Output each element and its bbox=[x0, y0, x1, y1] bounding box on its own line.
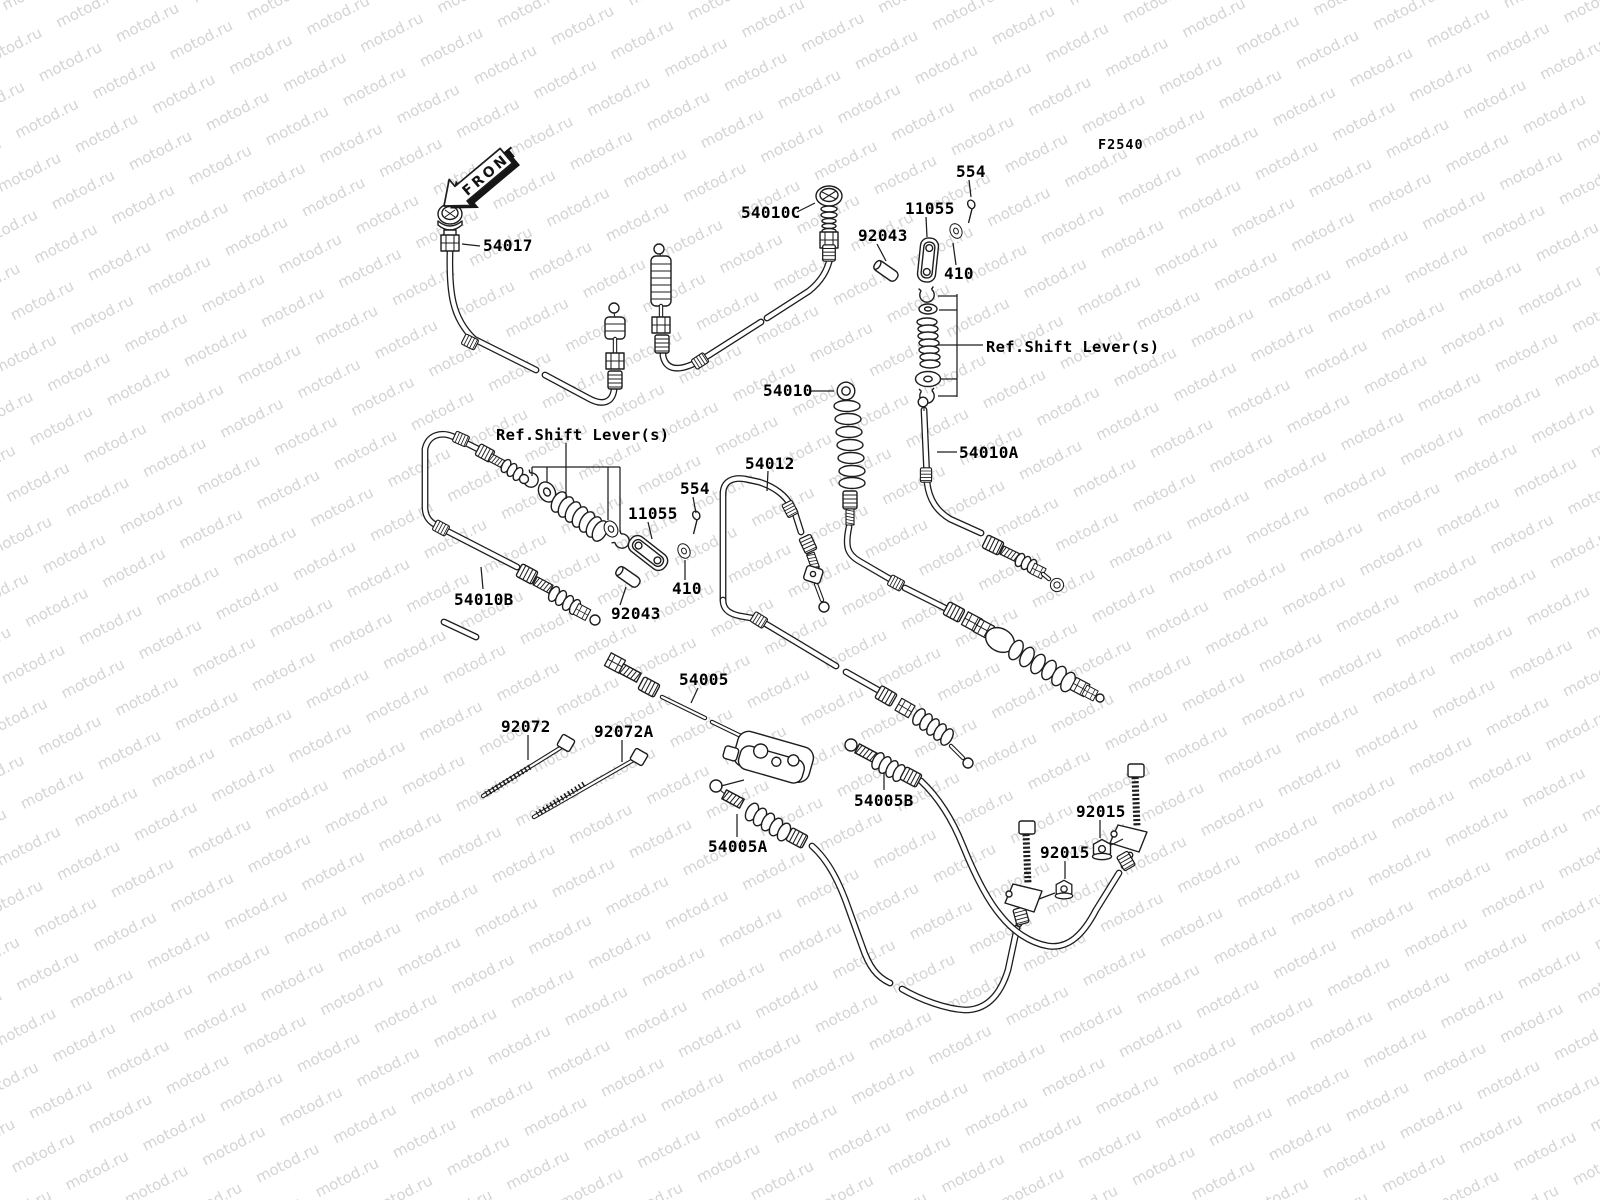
cotter-pin-554-top bbox=[968, 200, 975, 223]
shift-lever-spring-left bbox=[521, 470, 633, 552]
cable-54010a bbox=[924, 410, 981, 533]
leader-lines bbox=[462, 180, 1123, 899]
part-54012-clevis bbox=[799, 534, 829, 612]
label-11055-top: 11055 bbox=[905, 199, 955, 218]
pin-92043-top bbox=[872, 259, 900, 283]
cable-54010b bbox=[425, 434, 517, 567]
label-92043-left: 92043 bbox=[611, 604, 661, 623]
cables-parts-diagram: FRONT bbox=[0, 0, 1600, 1200]
cable-54010c bbox=[663, 258, 830, 368]
adjuster-stud-left bbox=[1005, 821, 1042, 912]
label-ref-shift-top: Ref.Shift Lever(s) bbox=[986, 338, 1159, 356]
label-54012: 54012 bbox=[745, 454, 795, 473]
cable-54010 bbox=[847, 527, 947, 609]
cable-tie-92072 bbox=[483, 734, 575, 796]
knob-54010c bbox=[816, 186, 842, 261]
label-54005b: 54005B bbox=[854, 791, 914, 810]
label-410-left: 410 bbox=[672, 579, 702, 598]
cotter-pin-554-left bbox=[693, 511, 700, 534]
cable-54017 bbox=[450, 252, 614, 402]
label-54010a: 54010A bbox=[959, 443, 1019, 462]
label-11055-left: 11055 bbox=[628, 504, 678, 523]
cable-tie-92072a bbox=[534, 748, 648, 817]
figure-code: F2540 bbox=[1098, 137, 1144, 153]
label-54010c: 54010C bbox=[741, 203, 801, 222]
rod-54005 bbox=[662, 697, 745, 738]
cable-end-54017 bbox=[605, 303, 625, 389]
pin-92043-left bbox=[614, 565, 642, 589]
flange-nut-92015-lower bbox=[1055, 880, 1072, 899]
part-54010a bbox=[918, 397, 1063, 591]
label-54005: 54005 bbox=[679, 670, 729, 689]
washer-410-top bbox=[948, 222, 965, 240]
part-54010b-lower-end bbox=[516, 564, 600, 625]
washer-410-left bbox=[675, 542, 692, 561]
cable-fragment bbox=[444, 622, 476, 637]
link-11055-left bbox=[625, 532, 671, 573]
part-54005-front bbox=[604, 653, 660, 698]
link-11055-top bbox=[917, 237, 940, 283]
label-92015-lower: 92015 bbox=[1040, 843, 1090, 862]
label-ref-shift-left: Ref.Shift Lever(s) bbox=[496, 426, 669, 444]
parts-diagram-page: motod.ru motod.ru motod.ru motod.ru moto… bbox=[0, 0, 1600, 1200]
label-554-left: 554 bbox=[680, 479, 710, 498]
part-54010b-upper-end bbox=[475, 444, 529, 484]
choke-knob-54017 bbox=[438, 204, 462, 251]
label-54017: 54017 bbox=[483, 236, 533, 255]
cable-end-54010c bbox=[651, 244, 671, 353]
part-54010-lower-end bbox=[943, 602, 1104, 702]
label-92015-upper: 92015 bbox=[1076, 802, 1126, 821]
label-410-top: 410 bbox=[944, 264, 974, 283]
shift-lever-spring-right bbox=[916, 287, 941, 404]
cable-54005a bbox=[812, 846, 1024, 1010]
label-92043-top: 92043 bbox=[858, 226, 908, 245]
label-92072: 92072 bbox=[501, 717, 551, 736]
flange-nut-92015-upper bbox=[1093, 840, 1112, 860]
front-arrow-label: FRONT bbox=[459, 143, 522, 199]
label-54010b: 54010B bbox=[454, 590, 514, 609]
label-54010: 54010 bbox=[763, 381, 813, 400]
label-554-top: 554 bbox=[956, 162, 986, 181]
label-54005a: 54005A bbox=[708, 837, 768, 856]
part-54010 bbox=[834, 382, 865, 525]
label-92072a: 92072A bbox=[594, 722, 654, 741]
